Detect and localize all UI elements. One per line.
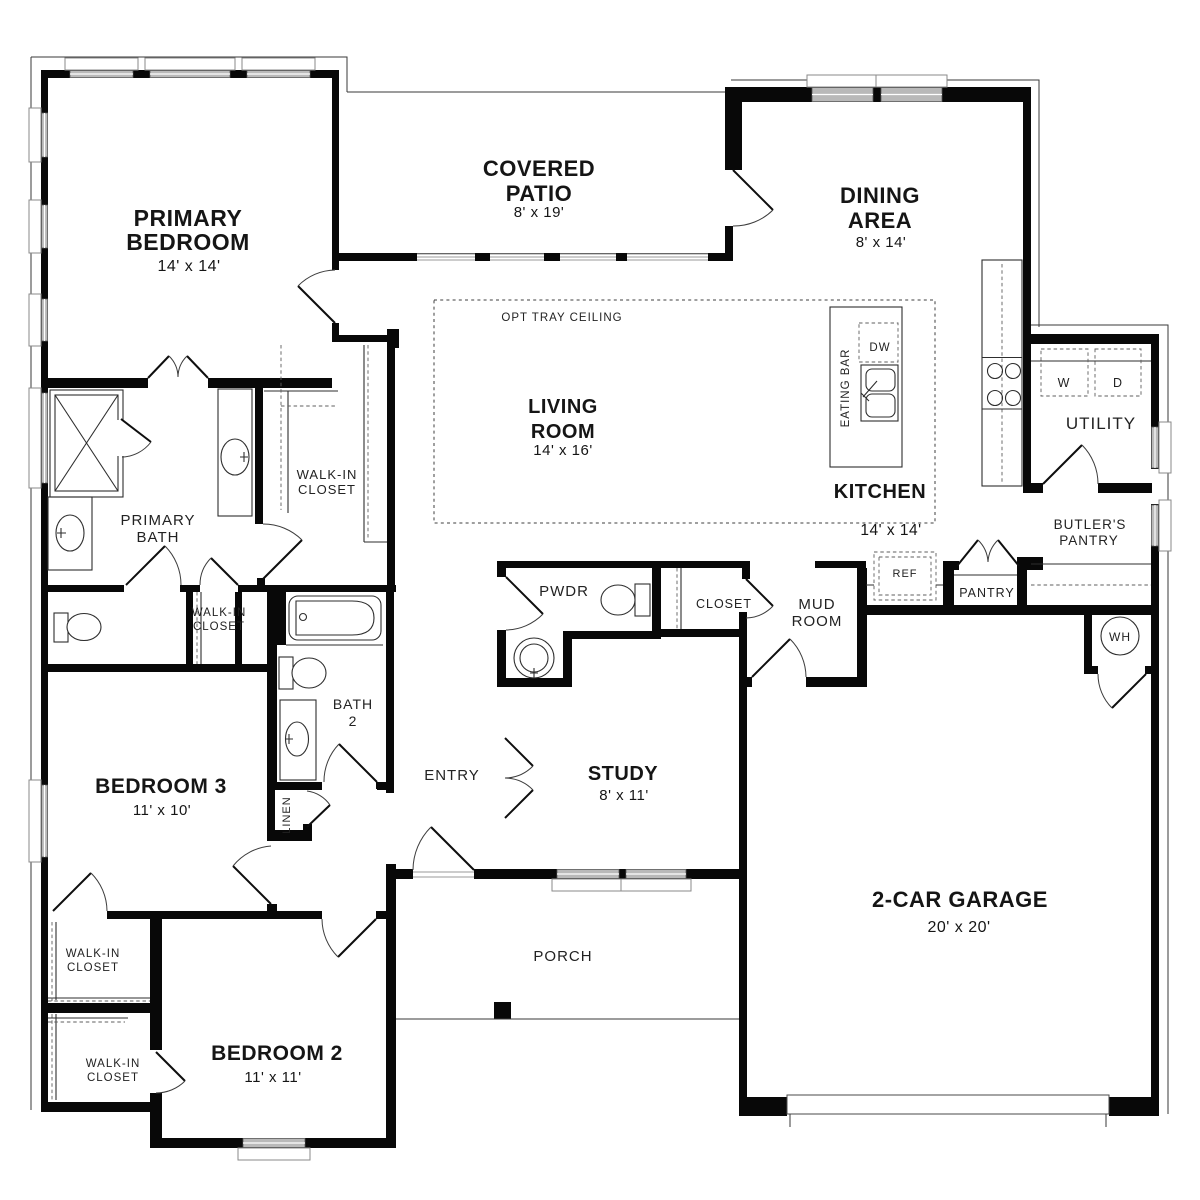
svg-text:OPT TRAY CEILING: OPT TRAY CEILING xyxy=(501,312,622,324)
svg-text:WH: WH xyxy=(1109,630,1131,644)
svg-text:W: W xyxy=(1058,376,1071,390)
svg-text:CLOSET: CLOSET xyxy=(67,962,119,974)
svg-text:ENTRY: ENTRY xyxy=(424,767,480,784)
svg-text:20' x 20': 20' x 20' xyxy=(927,919,990,936)
svg-text:PANTRY: PANTRY xyxy=(1059,533,1119,548)
svg-text:BEDROOM: BEDROOM xyxy=(126,229,250,255)
svg-text:14' x 14': 14' x 14' xyxy=(157,258,220,275)
svg-text:LINEN: LINEN xyxy=(281,796,293,833)
svg-text:WALK-IN: WALK-IN xyxy=(297,467,358,482)
svg-text:BATH: BATH xyxy=(333,696,373,712)
svg-text:BUTLER'S: BUTLER'S xyxy=(1054,517,1127,532)
svg-text:COVERED: COVERED xyxy=(483,156,595,181)
svg-text:PRIMARY: PRIMARY xyxy=(134,205,243,231)
svg-text:CLOSET: CLOSET xyxy=(696,597,752,611)
svg-text:8' x 11': 8' x 11' xyxy=(599,787,648,804)
svg-text:PRIMARY: PRIMARY xyxy=(120,512,195,529)
svg-text:CLOSET: CLOSET xyxy=(87,1072,139,1084)
svg-text:PWDR: PWDR xyxy=(539,583,589,600)
svg-text:CLOSET: CLOSET xyxy=(298,482,356,497)
svg-text:PANTRY: PANTRY xyxy=(959,586,1015,600)
svg-text:BEDROOM 2: BEDROOM 2 xyxy=(211,1042,343,1065)
svg-text:11' x 10': 11' x 10' xyxy=(133,802,191,819)
svg-text:D: D xyxy=(1113,376,1123,390)
svg-text:14' x 16': 14' x 16' xyxy=(533,442,592,459)
svg-text:WALK-IN: WALK-IN xyxy=(192,607,247,619)
svg-text:STUDY: STUDY xyxy=(588,763,658,785)
svg-text:ROOM: ROOM xyxy=(792,613,843,630)
svg-text:MUD: MUD xyxy=(798,596,835,613)
svg-text:PATIO: PATIO xyxy=(506,181,572,206)
svg-text:2-CAR GARAGE: 2-CAR GARAGE xyxy=(872,887,1048,912)
svg-text:14' x 14': 14' x 14' xyxy=(860,522,921,539)
svg-text:WALK-IN: WALK-IN xyxy=(66,948,121,960)
svg-text:11' x 11': 11' x 11' xyxy=(244,1069,301,1086)
svg-text:AREA: AREA xyxy=(848,208,912,233)
svg-text:CLOSET: CLOSET xyxy=(193,621,245,633)
svg-text:2: 2 xyxy=(349,713,358,729)
svg-text:ROOM: ROOM xyxy=(531,421,595,443)
svg-text:DINING: DINING xyxy=(840,183,920,208)
svg-text:PORCH: PORCH xyxy=(533,948,592,965)
svg-text:LIVING: LIVING xyxy=(528,396,598,418)
svg-text:EATING BAR: EATING BAR xyxy=(840,349,852,428)
svg-text:WALK-IN: WALK-IN xyxy=(86,1058,141,1070)
svg-text:UTILITY: UTILITY xyxy=(1066,414,1136,433)
svg-text:BEDROOM 3: BEDROOM 3 xyxy=(95,775,227,798)
svg-text:DW: DW xyxy=(869,342,890,354)
svg-text:8' x 14': 8' x 14' xyxy=(856,234,907,251)
svg-text:BATH: BATH xyxy=(137,529,180,546)
svg-text:REF: REF xyxy=(893,568,918,580)
svg-text:8' x 19': 8' x 19' xyxy=(514,204,565,221)
svg-text:KITCHEN: KITCHEN xyxy=(834,481,926,503)
